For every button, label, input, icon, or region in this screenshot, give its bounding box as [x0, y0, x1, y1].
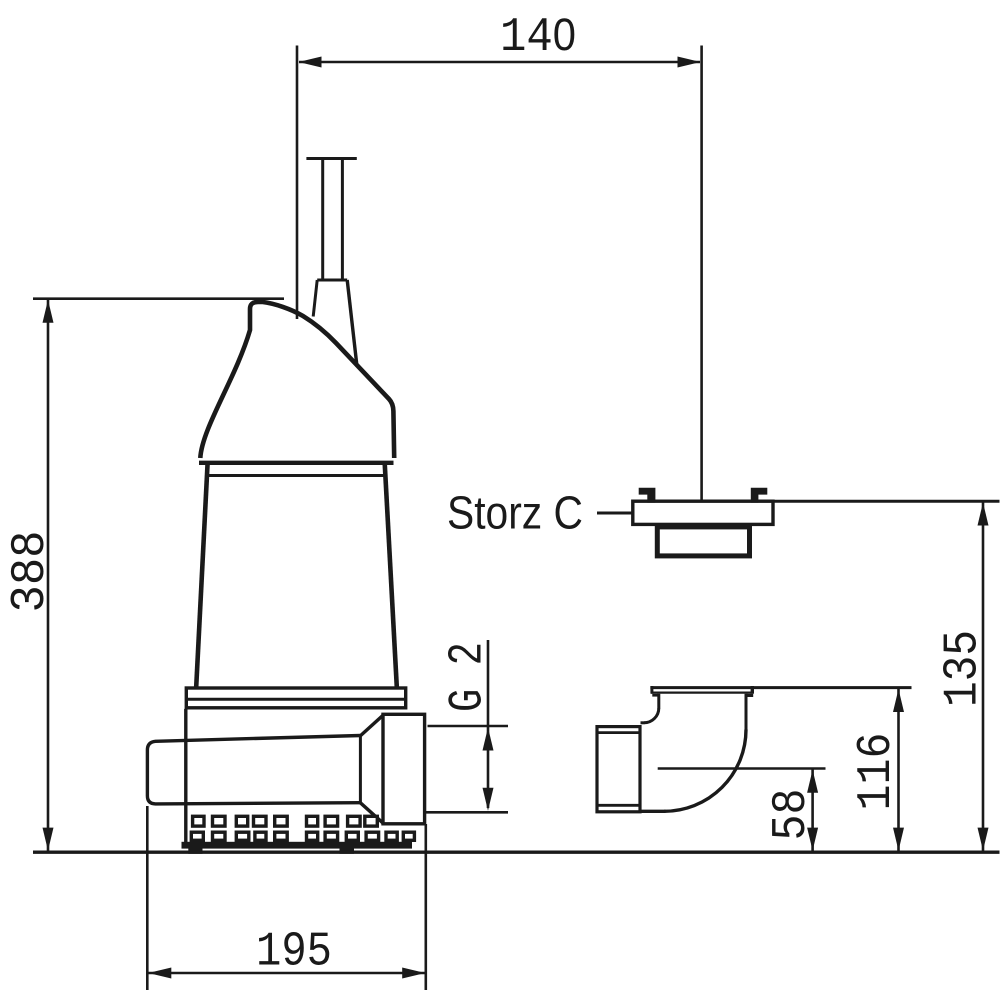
svg-text:Storz C: Storz C — [447, 487, 583, 539]
svg-text:135: 135 — [937, 630, 991, 707]
svg-text:58: 58 — [765, 789, 819, 841]
svg-text:G 2: G 2 — [442, 642, 496, 712]
svg-text:388: 388 — [4, 531, 58, 613]
svg-text:195: 195 — [256, 926, 332, 980]
svg-text:116: 116 — [850, 733, 904, 811]
svg-text:140: 140 — [500, 9, 576, 65]
